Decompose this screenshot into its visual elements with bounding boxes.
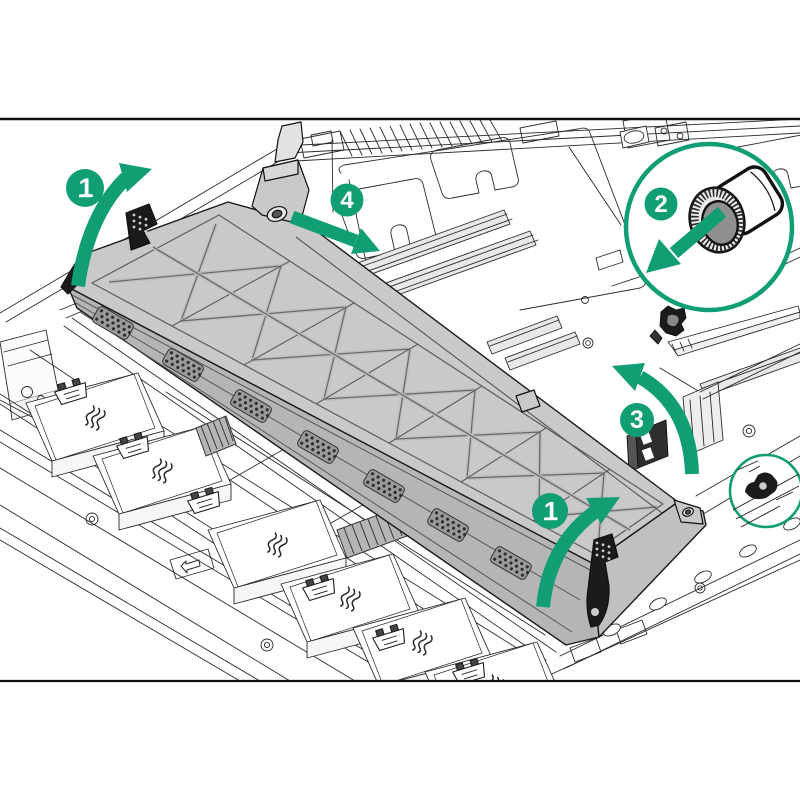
- svg-text:1: 1: [78, 173, 93, 203]
- svg-text:4: 4: [340, 187, 354, 214]
- svg-text:1: 1: [544, 496, 558, 526]
- svg-text:3: 3: [630, 406, 644, 434]
- svg-text:2: 2: [654, 191, 667, 218]
